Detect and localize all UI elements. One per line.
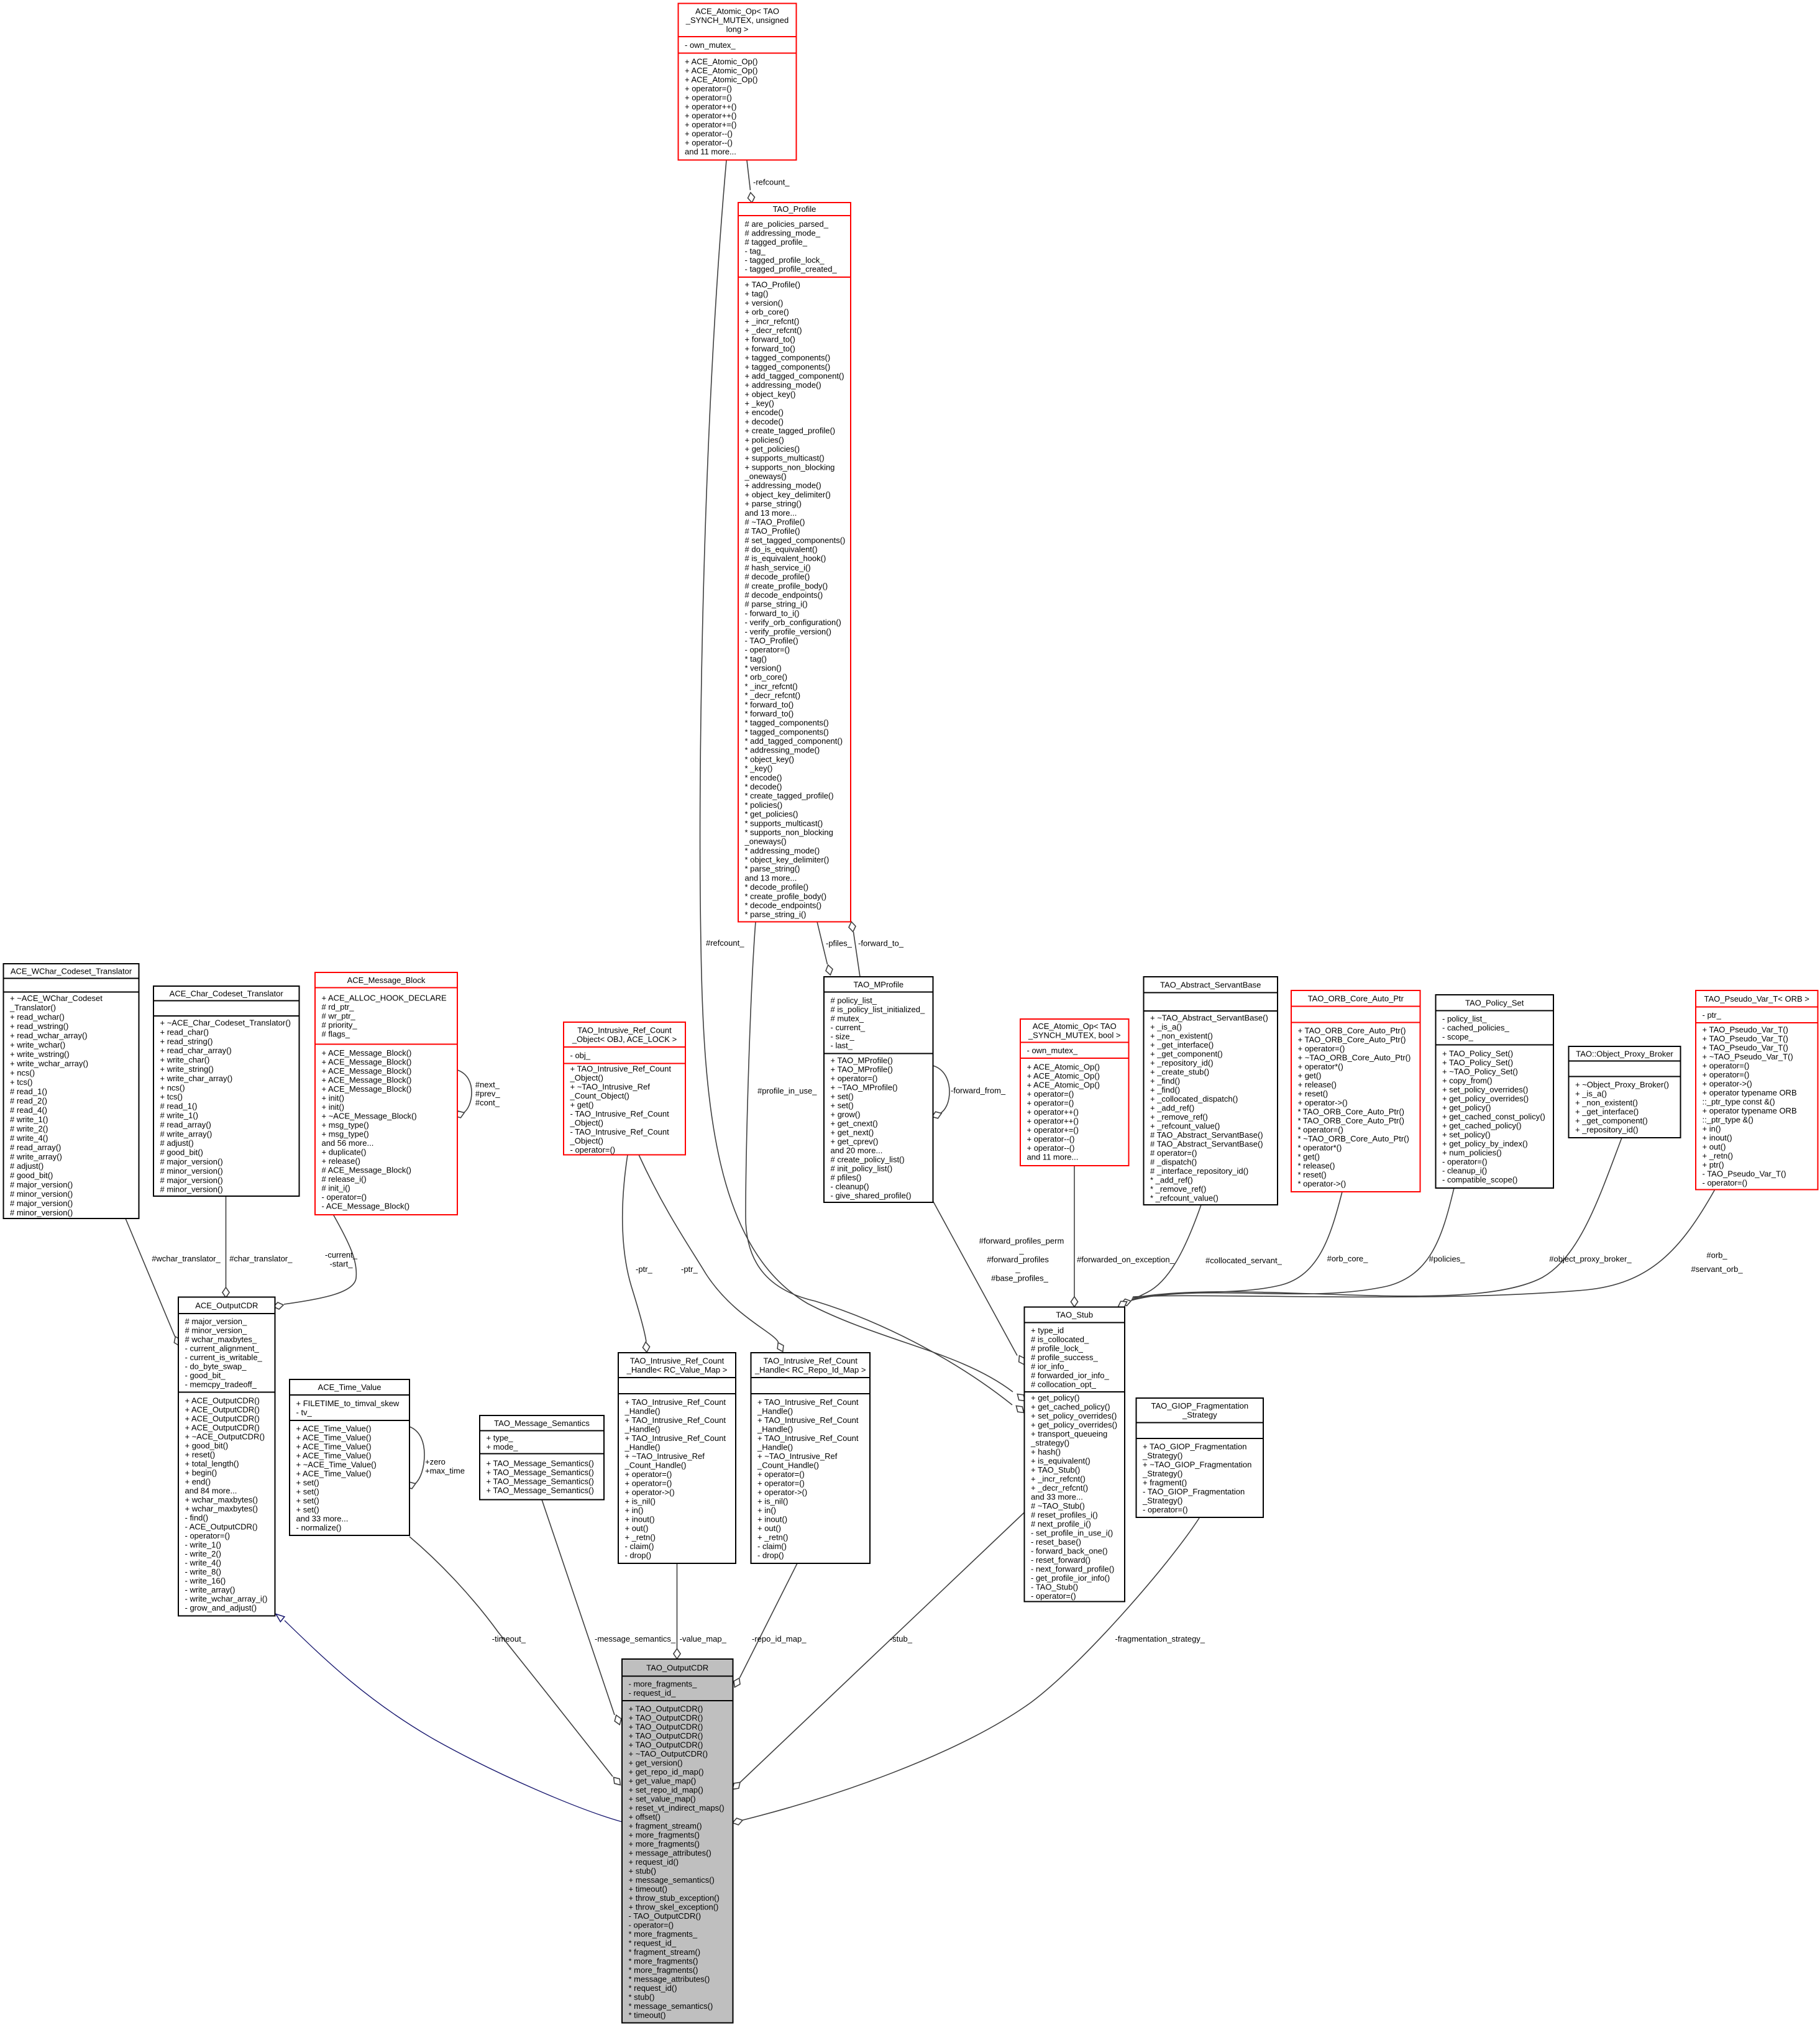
svg-text:+ throw_stub_exception(): + throw_stub_exception() [629,1893,720,1903]
svg-text:+ _refcount_value(): + _refcount_value() [1150,1122,1220,1131]
svg-text:+ _incr_refcnt(): + _incr_refcnt() [1031,1474,1086,1483]
svg-text:+ get_policy_overrides(): + get_policy_overrides() [1442,1094,1529,1103]
svg-text:+ in(): + in() [757,1506,776,1515]
svg-text:-ptr_: -ptr_ [681,1264,698,1274]
svg-text:* decode_endpoints(): * decode_endpoints() [745,901,822,910]
svg-text:+ read_string(): + read_string() [160,1036,213,1046]
svg-text:+ release(): + release() [322,1156,361,1166]
svg-text:- cleanup(): - cleanup() [831,1182,869,1191]
svg-text:* timeout(): * timeout() [629,2010,666,2019]
svg-text:- TAO_Intrusive_Ref_Count: - TAO_Intrusive_Ref_Count [570,1127,670,1136]
svg-text:+ ~TAO_Intrusive_Ref: + ~TAO_Intrusive_Ref [570,1082,651,1091]
svg-text:- current_: - current_ [831,1023,866,1032]
svg-text:+ tcs(): + tcs() [10,1077,32,1087]
svg-text:+ TAO_Pseudo_Var_T(): + TAO_Pseudo_Var_T() [1703,1025,1788,1035]
svg-text:and 13 more...: and 13 more... [745,508,797,518]
svg-text:- TAO_GIOP_Fragmentation: - TAO_GIOP_Fragmentation [1143,1487,1245,1496]
svg-text:# good_bit(): # good_bit() [160,1148,203,1157]
svg-text:* tagged_components(): * tagged_components() [745,727,829,736]
svg-text:+ operator typename ORB: + operator typename ORB [1703,1106,1797,1115]
svg-text:* supports_multicast(): * supports_multicast() [745,818,823,828]
svg-text:# decode_profile(): # decode_profile() [745,572,810,582]
svg-text:- get_profile_ior_info(): - get_profile_ior_info() [1031,1573,1110,1583]
svg-text:* reset(): * reset() [1298,1170,1327,1179]
svg-text:- tagged_profile_lock_: - tagged_profile_lock_ [745,255,825,265]
svg-text:+ mode_: + mode_ [487,1442,519,1452]
svg-text:- verify_orb_configuration(): - verify_orb_configuration() [745,618,841,627]
svg-text:+ out(): + out() [625,1524,649,1533]
svg-text:+ operator->(): + operator->() [1703,1079,1752,1089]
svg-text:_Handle(): _Handle() [757,1424,793,1433]
svg-text:_Translator(): _Translator() [9,1003,56,1012]
svg-text:+ init(): + init() [322,1094,344,1103]
svg-text:* addressing_mode(): * addressing_mode() [745,746,820,755]
svg-text:+ operator=(): + operator=() [625,1478,672,1488]
svg-text:+ ACE_Atomic_Op(): + ACE_Atomic_Op() [1027,1081,1100,1090]
svg-text:- good_bit_: - good_bit_ [185,1371,226,1380]
svg-text:+ ACE_OutputCDR(): + ACE_OutputCDR() [185,1405,260,1414]
svg-text:+ ncs(): + ncs() [160,1083,185,1092]
svg-text:_Strategy: _Strategy [1182,1410,1217,1420]
svg-text:+ ~TAO_GIOP_Fragmentation: + ~TAO_GIOP_Fragmentation [1143,1460,1251,1469]
svg-text:#orb_core_: #orb_core_ [1327,1254,1369,1263]
svg-text:# _dispatch(): # _dispatch() [1150,1158,1197,1167]
svg-text:- policy_list_: - policy_list_ [1442,1014,1487,1023]
svg-text:+ type_id: + type_id [1031,1325,1064,1335]
svg-text:and 20 more...: and 20 more... [831,1146,883,1155]
svg-text:+ ~ACE_WChar_Codeset: + ~ACE_WChar_Codeset [10,994,103,1003]
svg-text:+ tagged_components(): + tagged_components() [745,353,831,362]
svg-text:# collocation_opt_: # collocation_opt_ [1031,1379,1097,1389]
svg-text:+ reset_vt_indirect_maps(): + reset_vt_indirect_maps() [629,1803,725,1813]
svg-text:+ _non_existent(): + _non_existent() [1575,1098,1638,1107]
svg-text:- compatible_scope(): - compatible_scope() [1442,1175,1517,1184]
svg-text:+ message_attributes(): + message_attributes() [629,1848,711,1857]
svg-text:+ message_semantics(): + message_semantics() [629,1875,715,1885]
svg-text:+ _remove_ref(): + _remove_ref() [1150,1112,1208,1122]
svg-text:+ TAO_Policy_Set(): + TAO_Policy_Set() [1442,1058,1513,1067]
svg-text:+ throw_skel_exception(): + throw_skel_exception() [629,1902,719,1911]
svg-text:- operator=(): - operator=() [1442,1157,1488,1166]
svg-text:and 11 more...: and 11 more... [685,147,736,157]
svg-text:# minor_version_: # minor_version_ [185,1326,247,1335]
svg-text:# write_2(): # write_2() [10,1124,48,1133]
svg-text:TAO_GIOP_Fragmentation: TAO_GIOP_Fragmentation [1151,1401,1249,1410]
svg-text:TAO_Stub: TAO_Stub [1056,1310,1093,1320]
svg-text:+ inout(): + inout() [1703,1133,1732,1143]
svg-text:+ ~TAO_MProfile(): + ~TAO_MProfile() [831,1083,898,1092]
svg-text:+ _retn(): + _retn() [1703,1151,1734,1161]
svg-text:+ fragment_stream(): + fragment_stream() [629,1821,702,1831]
svg-text:- TAO_OutputCDR(): - TAO_OutputCDR() [629,1911,702,1921]
svg-text:+ TAO_Stub(): + TAO_Stub() [1031,1465,1080,1474]
svg-text:+ reset(): + reset() [1298,1089,1328,1099]
svg-text:# good_bit(): # good_bit() [10,1171,53,1180]
svg-text:+ forward_to(): + forward_to() [745,344,795,353]
svg-text:_: _ [1015,1264,1020,1274]
svg-text:+ ACE_Time_Value(): + ACE_Time_Value() [296,1442,372,1451]
svg-text:+ get_policy_overrides(): + get_policy_overrides() [1031,1420,1117,1429]
svg-text:* release(): * release() [1298,1161,1335,1171]
svg-text:+ get_policy_by_index(): + get_policy_by_index() [1442,1139,1528,1148]
svg-text:* supports_non_blocking: * supports_non_blocking [745,828,833,837]
svg-text:#next_: #next_ [475,1080,500,1089]
svg-text:_SYNCH_MUTEX, unsigned: _SYNCH_MUTEX, unsigned [685,16,789,25]
svg-text:+ fragment(): + fragment() [1143,1478,1187,1487]
svg-text:# pfiles(): # pfiles() [831,1173,862,1182]
svg-text:+ _key(): + _key() [745,399,774,408]
svg-text:+ TAO_Intrusive_Ref_Count: + TAO_Intrusive_Ref_Count [625,1433,726,1443]
svg-text:* _key(): * _key() [745,764,773,773]
svg-text:- write_wchar_array_i(): - write_wchar_array_i() [185,1594,268,1603]
svg-text:#prev_: #prev_ [475,1089,501,1099]
svg-text:+ get_cached_const_policy(): + get_cached_const_policy() [1442,1112,1545,1121]
svg-text:- more_fragments_: - more_fragments_ [629,1680,698,1689]
svg-text:TAO_Profile: TAO_Profile [773,204,816,214]
svg-text:+ TAO_Message_Semantics(): + TAO_Message_Semantics() [487,1486,594,1495]
svg-text:#servant_orb_: #servant_orb_ [1691,1264,1743,1274]
svg-text:+ ACE_OutputCDR(): + ACE_OutputCDR() [185,1414,260,1423]
svg-text:* encode(): * encode() [745,773,782,782]
svg-text:+ get_cnext(): + get_cnext() [831,1119,878,1128]
svg-text:+zero: +zero [425,1457,446,1466]
svg-text:# minor_version(): # minor_version() [160,1185,223,1194]
svg-text:# release_i(): # release_i() [322,1174,367,1184]
svg-text:- grow_and_adjust(): - grow_and_adjust() [185,1603,257,1612]
svg-text:TAO_Abstract_ServantBase: TAO_Abstract_ServantBase [1160,980,1261,989]
svg-text:* fragment_stream(): * fragment_stream() [629,1947,701,1957]
svg-text:# read_4(): # read_4() [10,1105,47,1115]
svg-text:+ get_cached_policy(): + get_cached_policy() [1031,1402,1110,1411]
svg-text:- request_id_: - request_id_ [629,1688,677,1698]
svg-text:- scope_: - scope_ [1442,1032,1474,1041]
svg-text:+ more_fragments(): + more_fragments() [629,1839,700,1849]
svg-text:+ tag(): + tag() [745,289,769,298]
svg-text:+ begin(): + begin() [185,1468,217,1477]
svg-text:* object_key(): * object_key() [745,754,794,764]
svg-text:# minor_version(): # minor_version() [10,1189,73,1199]
svg-text:# major_version(): # major_version() [160,1176,223,1185]
svg-text:+ operator->(): + operator->() [1298,1098,1348,1107]
svg-text:#wchar_translator_: #wchar_translator_ [152,1254,221,1263]
svg-text:+ TAO_OutputCDR(): + TAO_OutputCDR() [629,1740,703,1749]
svg-text:-ptr_: -ptr_ [636,1264,653,1274]
svg-text:+ reset(): + reset() [185,1450,216,1459]
svg-text:# create_profile_body(): # create_profile_body() [745,581,828,590]
svg-text:* parse_string(): * parse_string() [745,864,800,874]
svg-text:- do_byte_swap_: - do_byte_swap_ [185,1362,247,1371]
svg-text:* get(): * get() [1298,1152,1320,1161]
svg-text:# TAO_Abstract_ServantBase(): # TAO_Abstract_ServantBase() [1150,1130,1263,1140]
svg-text:- drop(): - drop() [625,1550,652,1560]
svg-text:# is_policy_list_initialized_: # is_policy_list_initialized_ [831,1005,926,1014]
svg-text:+ object_key(): + object_key() [745,390,796,399]
svg-text:+ _repository_id(): + _repository_id() [1575,1125,1639,1135]
svg-text:* tagged_components(): * tagged_components() [745,718,829,728]
svg-text:+ set(): + set() [831,1092,854,1101]
svg-text:+ FILETIME_to_timval_skew: + FILETIME_to_timval_skew [296,1399,400,1408]
svg-text:+ get_repo_id_map(): + get_repo_id_map() [629,1767,704,1776]
svg-text:# init_policy_list(): # init_policy_list() [831,1164,893,1173]
svg-text:+ _is_a(): + _is_a() [1150,1022,1182,1031]
svg-text:_Handle< RC_Value_Map >: _Handle< RC_Value_Map > [626,1365,728,1374]
svg-text:* get_policies(): * get_policies() [745,810,798,819]
svg-text:+ copy_from(): + copy_from() [1442,1076,1493,1085]
svg-text:+ create_tagged_profile(): + create_tagged_profile() [745,426,836,436]
svg-text:- own_mutex_: - own_mutex_ [1027,1046,1078,1055]
svg-text:#base_profiles_: #base_profiles_ [991,1274,1049,1283]
svg-text:_Object(): _Object() [570,1136,603,1145]
svg-text:+ ACE_ALLOC_HOOK_DECLARE: + ACE_ALLOC_HOOK_DECLARE [322,994,447,1003]
svg-text:TAO_Intrusive_Ref_Count: TAO_Intrusive_Ref_Count [577,1025,672,1035]
svg-text:+ write_wstring(): + write_wstring() [10,1049,70,1059]
svg-text:+ get_cprev(): + get_cprev() [831,1137,879,1146]
svg-text:+ get_cached_policy(): + get_cached_policy() [1442,1121,1522,1130]
svg-text:+ object_key_delimiter(): + object_key_delimiter() [745,490,831,499]
svg-text:+ wchar_maxbytes(): + wchar_maxbytes() [185,1504,258,1513]
svg-text:- set_profile_in_use_i(): - set_profile_in_use_i() [1031,1528,1113,1537]
svg-text:- tagged_profile_created_: - tagged_profile_created_ [745,264,838,273]
svg-text:+ operator=(): + operator=() [1027,1089,1074,1099]
svg-text:+ operator=(): + operator=() [757,1470,805,1479]
svg-text:+ ~TAO_Pseudo_Var_T(): + ~TAO_Pseudo_Var_T() [1703,1052,1793,1061]
svg-text:+ operator=(): + operator=() [1703,1070,1750,1079]
svg-text:# major_version(): # major_version() [10,1199,73,1208]
svg-text:* tag(): * tag() [745,654,767,664]
svg-text:+ set_policy(): + set_policy() [1442,1130,1491,1139]
svg-text:# is_collocated_: # is_collocated_ [1031,1335,1089,1344]
svg-text:+ set(): + set() [831,1101,854,1110]
svg-text:+ write_wchar_array(): + write_wchar_array() [10,1059,88,1068]
svg-text:+ ncs(): + ncs() [10,1068,35,1077]
svg-text:- cleanup_i(): - cleanup_i() [1442,1166,1487,1175]
svg-text:+ operator=(): + operator=() [1027,1099,1074,1108]
svg-text:* TAO_ORB_Core_Auto_Ptr(): * TAO_ORB_Core_Auto_Ptr() [1298,1107,1404,1117]
svg-text:# addressing_mode_: # addressing_mode_ [745,228,821,237]
svg-text:* create_profile_body(): * create_profile_body() [745,892,827,901]
svg-text:+ ACE_OutputCDR(): + ACE_OutputCDR() [185,1423,260,1432]
svg-text:* operator*(): * operator*() [1298,1143,1342,1153]
svg-text:- operator=(): - operator=() [745,645,790,654]
svg-text:+ TAO_OutputCDR(): + TAO_OutputCDR() [629,1713,703,1722]
svg-text:* request_id(): * request_id() [629,1983,677,1993]
svg-text:TAO_Policy_Set: TAO_Policy_Set [1465,998,1524,1007]
svg-text:+ operator++(): + operator++() [1027,1107,1079,1117]
svg-text:- TAO_Profile(): - TAO_Profile() [745,636,798,646]
svg-text:- verify_profile_version(): - verify_profile_version() [745,627,831,636]
svg-text:+ supports_multicast(): + supports_multicast() [745,454,825,463]
svg-text:# write_1(): # write_1() [160,1111,198,1120]
svg-text:TAO::Object_Proxy_Broker: TAO::Object_Proxy_Broker [1576,1049,1673,1058]
svg-text:+ grow(): + grow() [831,1110,861,1119]
svg-text:+ _incr_refcnt(): + _incr_refcnt() [745,316,800,326]
svg-text:+ write_char(): + write_char() [160,1055,210,1064]
svg-text:+ TAO_Message_Semantics(): + TAO_Message_Semantics() [487,1476,594,1486]
svg-text:* addressing_mode(): * addressing_mode() [745,846,820,855]
svg-text:+ operator--(): + operator--() [685,138,733,147]
svg-text:+ transport_queueing: + transport_queueing [1031,1429,1107,1438]
svg-text:* forward_to(): * forward_to() [745,709,794,718]
svg-text:+ ACE_Atomic_Op(): + ACE_Atomic_Op() [1027,1071,1100,1081]
svg-text:+ ACE_Time_Value(): + ACE_Time_Value() [296,1451,372,1460]
svg-text:+ read_wstring(): + read_wstring() [10,1022,68,1031]
svg-text:+ policies(): + policies() [745,435,784,444]
svg-text:# are_policies_parsed_: # are_policies_parsed_ [745,219,829,229]
svg-text:* version(): * version() [745,664,782,673]
svg-text:+ TAO_OutputCDR(): + TAO_OutputCDR() [629,1722,703,1731]
svg-text:ACE_WChar_Codeset_Translator: ACE_WChar_Codeset_Translator [11,966,132,976]
svg-text:+ read_wchar(): + read_wchar() [10,1012,65,1022]
svg-text:- tv_: - tv_ [296,1407,313,1417]
svg-text:+ inout(): + inout() [625,1514,655,1524]
svg-text:+ operator=(): + operator=() [1298,1044,1345,1053]
svg-text:+ version(): + version() [745,298,784,308]
svg-text:+ ~TAO_OutputCDR(): + ~TAO_OutputCDR() [629,1749,708,1758]
svg-text:+ TAO_Intrusive_Ref_Count: + TAO_Intrusive_Ref_Count [625,1415,726,1425]
svg-text:-forward_to_: -forward_to_ [858,939,904,948]
svg-text:+ TAO_Intrusive_Ref_Count: + TAO_Intrusive_Ref_Count [625,1397,726,1407]
svg-text:# reset_profiles_i(): # reset_profiles_i() [1031,1510,1098,1519]
svg-text:ACE_OutputCDR: ACE_OutputCDR [195,1301,258,1310]
svg-text:+ operator++(): + operator++() [685,111,736,121]
svg-text:* more_fragments(): * more_fragments() [629,1956,698,1965]
svg-text:# policy_list_: # policy_list_ [831,995,877,1005]
svg-text:+ offset(): + offset() [629,1812,661,1821]
svg-text:and 33 more...: and 33 more... [296,1514,349,1523]
svg-text:+ TAO_Intrusive_Ref_Count: + TAO_Intrusive_Ref_Count [757,1433,859,1443]
svg-text:+ tagged_components(): + tagged_components() [745,362,831,372]
svg-text:- ACE_Message_Block(): - ACE_Message_Block() [322,1202,410,1211]
svg-text:* message_attributes(): * message_attributes() [629,1974,710,1983]
svg-text:+ ACE_Time_Value(): + ACE_Time_Value() [296,1424,372,1433]
svg-text:- cached_policies_: - cached_policies_ [1442,1023,1509,1033]
svg-text:::_ptr_type const &(): ::_ptr_type const &() [1703,1097,1775,1107]
svg-text:+ more_fragments(): + more_fragments() [629,1830,700,1839]
svg-text:+ ACE_Message_Block(): + ACE_Message_Block() [322,1084,412,1094]
svg-text:* add_tagged_component(): * add_tagged_component() [745,736,843,746]
svg-text:# mutex_: # mutex_ [831,1013,864,1023]
svg-text:-pfiles_: -pfiles_ [826,939,853,948]
svg-text:- own_mutex_: - own_mutex_ [685,40,736,50]
svg-text:# read_1(): # read_1() [160,1102,198,1111]
svg-text:ACE_Char_Codeset_Translator: ACE_Char_Codeset_Translator [170,989,284,998]
svg-text:_oneways(): _oneways() [744,837,787,846]
svg-text:+ forward_to(): + forward_to() [745,335,795,344]
svg-text:+ set(): + set() [296,1505,319,1514]
svg-text:- obj_: - obj_ [570,1051,591,1060]
svg-text:+ ~TAO_Policy_Set(): + ~TAO_Policy_Set() [1442,1067,1518,1076]
svg-text:- forward_to_i(): - forward_to_i() [745,608,800,618]
svg-text:+ get_version(): + get_version() [629,1758,683,1767]
svg-text:# major_version(): # major_version() [10,1180,73,1189]
svg-text:+ get_policies(): + get_policies() [745,444,800,454]
svg-text:_Object(): _Object() [570,1073,603,1082]
svg-text:+ in(): + in() [1703,1124,1721,1133]
svg-text:+ tcs(): + tcs() [160,1092,183,1102]
svg-text:TAO_Pseudo_Var_T< ORB >: TAO_Pseudo_Var_T< ORB > [1704,994,1809,1004]
svg-text:# write_1(): # write_1() [10,1115,48,1124]
svg-text:- last_: - last_ [831,1041,853,1050]
svg-text:# write_array(): # write_array() [10,1152,62,1161]
svg-text:+ write_wchar(): + write_wchar() [10,1040,65,1049]
svg-text:+ good_bit(): + good_bit() [185,1441,229,1450]
svg-text:_Strategy(): _Strategy() [1142,1469,1182,1478]
svg-text:+ set_repo_id_map(): + set_repo_id_map() [629,1785,703,1795]
svg-text:-message_semantics_: -message_semantics_ [595,1634,676,1644]
svg-text:+ operator=(): + operator=() [625,1470,672,1479]
svg-text:#forward_profiles: #forward_profiles [987,1255,1049,1264]
svg-text:+ ACE_Message_Block(): + ACE_Message_Block() [322,1066,412,1076]
svg-text:# major_version(): # major_version() [160,1157,223,1166]
svg-text:+ operator--(): + operator--() [1027,1135,1075,1144]
svg-text:+ _get_interface(): + _get_interface() [1150,1040,1214,1049]
svg-text:_Strategy(): _Strategy() [1142,1496,1182,1505]
svg-text:-start_: -start_ [330,1259,354,1268]
svg-text:#forward_profiles_perm: #forward_profiles_perm [979,1237,1064,1246]
svg-text:TAO_ORB_Core_Auto_Ptr: TAO_ORB_Core_Auto_Ptr [1308,994,1404,1003]
svg-text:* create_tagged_profile(): * create_tagged_profile() [745,791,834,800]
svg-text:- ACE_OutputCDR(): - ACE_OutputCDR() [185,1522,258,1531]
svg-text:# read_array(): # read_array() [10,1143,61,1152]
svg-text:+ ~Object_Proxy_Broker(): + ~Object_Proxy_Broker() [1575,1080,1669,1089]
svg-text:* stub(): * stub() [629,1992,655,2001]
svg-text:-current_: -current_ [325,1250,358,1260]
svg-text:+ get(): + get() [1298,1071,1322,1081]
svg-text:+ get_value_map(): + get_value_map() [629,1776,697,1785]
svg-text:+ _decr_refcnt(): + _decr_refcnt() [745,326,802,335]
svg-text:#collocated_servant_: #collocated_servant_ [1205,1256,1283,1265]
svg-text:* _incr_refcnt(): * _incr_refcnt() [745,682,798,691]
svg-text:_Handle(): _Handle() [624,1424,661,1433]
svg-text:# adjust(): # adjust() [10,1161,43,1171]
svg-text:#forwarded_on_exception_: #forwarded_on_exception_ [1077,1255,1175,1264]
svg-text:and 56 more...: and 56 more... [322,1138,374,1148]
svg-text:TAO_Message_Semantics: TAO_Message_Semantics [494,1419,590,1428]
svg-text:+ operator++(): + operator++() [685,102,736,111]
svg-text:-forward_from_: -forward_from_ [951,1086,1006,1095]
svg-text:+max_time: +max_time [425,1466,465,1476]
svg-text:- tag_: - tag_ [745,246,766,255]
svg-text:# forwarded_ior_info_: # forwarded_ior_info_ [1031,1371,1110,1380]
svg-text:TAO_Intrusive_Ref_Count: TAO_Intrusive_Ref_Count [630,1356,725,1365]
svg-text:+ operator typename ORB: + operator typename ORB [1703,1088,1797,1097]
svg-text:+ TAO_MProfile(): + TAO_MProfile() [831,1056,893,1065]
svg-text:_Object< OBJ, ACE_LOCK >: _Object< OBJ, ACE_LOCK > [572,1035,677,1044]
svg-text:# parse_string_i(): # parse_string_i() [745,600,808,609]
svg-text:TAO_OutputCDR: TAO_OutputCDR [646,1663,708,1672]
svg-text:# TAO_Profile(): # TAO_Profile() [745,526,800,536]
svg-text:+ _get_component(): + _get_component() [1150,1049,1223,1059]
svg-text:+ ACE_Time_Value(): + ACE_Time_Value() [296,1433,372,1442]
svg-text:+ add_tagged_component(): + add_tagged_component() [745,371,844,380]
svg-text:+ encode(): + encode() [745,408,784,417]
svg-text:+ addressing_mode(): + addressing_mode() [745,481,821,490]
svg-text:+ set_policy_overrides(): + set_policy_overrides() [1442,1085,1528,1094]
svg-text:+ operator=(): + operator=() [831,1074,878,1083]
svg-text:- ptr_: - ptr_ [1703,1010,1722,1020]
svg-text:+ get_policy(): + get_policy() [1031,1393,1079,1402]
svg-text:+ hash(): + hash() [1031,1447,1061,1456]
svg-text:+ end(): + end() [185,1477,211,1486]
svg-text:- current_alignment_: - current_alignment_ [185,1344,260,1353]
svg-text:+ operator++(): + operator++() [1027,1117,1079,1126]
svg-text:+ type_: + type_ [487,1433,514,1442]
svg-text:+ orb_core(): + orb_core() [745,308,789,317]
svg-text:- TAO_Intrusive_Ref_Count: - TAO_Intrusive_Ref_Count [570,1109,670,1118]
svg-text:* orb_core(): * orb_core() [745,672,788,682]
svg-text:+ operator=(): + operator=() [685,93,732,103]
svg-text:# init_i(): # init_i() [322,1184,350,1193]
